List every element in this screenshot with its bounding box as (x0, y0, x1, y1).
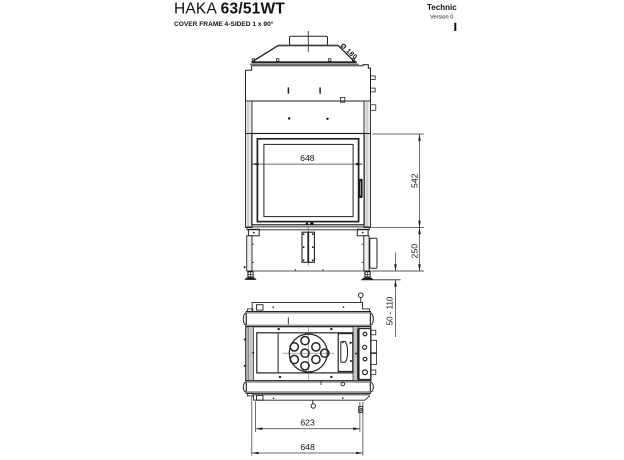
svg-text:Version 0: Version 0 (430, 15, 453, 21)
svg-text:50 - 110: 50 - 110 (386, 296, 395, 325)
svg-text:HAKA 63/51WT: HAKA 63/51WT (174, 1, 285, 18)
svg-text:648: 648 (300, 153, 315, 163)
svg-text:Technic: Technic (427, 3, 457, 12)
svg-text:623: 623 (300, 418, 315, 428)
svg-text:648: 648 (300, 442, 315, 452)
svg-text:542: 542 (410, 173, 420, 188)
svg-text:250: 250 (410, 244, 420, 259)
svg-text:COVER FRAME 4-SIDED 1 x 90°: COVER FRAME 4-SIDED 1 x 90° (174, 20, 274, 28)
